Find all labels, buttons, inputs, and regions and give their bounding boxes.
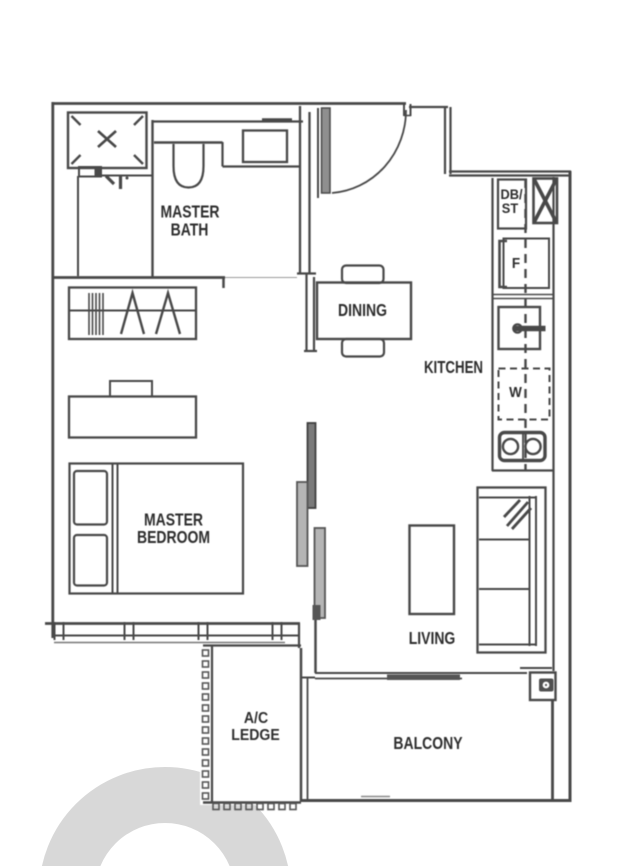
svg-text:BALCONY: BALCONY xyxy=(393,735,463,754)
svg-text:W: W xyxy=(509,384,522,401)
svg-text:F: F xyxy=(512,255,521,272)
svg-text:KITCHEN: KITCHEN xyxy=(424,358,483,377)
svg-text:BEDROOM: BEDROOM xyxy=(137,529,210,548)
svg-text:MASTER: MASTER xyxy=(160,203,220,222)
svg-text:A/C: A/C xyxy=(244,709,268,727)
svg-text:MASTER: MASTER xyxy=(144,511,204,530)
svg-text:LIVING: LIVING xyxy=(409,630,456,649)
svg-text:ST: ST xyxy=(502,201,518,216)
svg-text:BATH: BATH xyxy=(171,221,209,240)
svg-text:LEDGE: LEDGE xyxy=(231,726,279,744)
svg-text:DINING: DINING xyxy=(338,302,387,321)
